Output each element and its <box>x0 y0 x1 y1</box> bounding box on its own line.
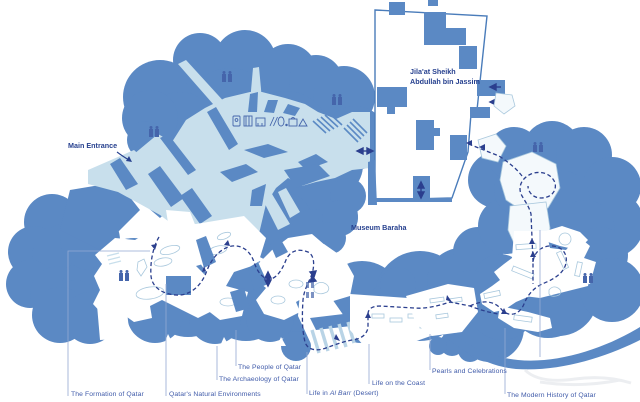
svg-text:Life in Al Barr (Desert): Life in Al Barr (Desert) <box>309 390 379 397</box>
svg-text:Abdullah bin Jassim: Abdullah bin Jassim <box>410 77 480 86</box>
svg-text:Museum Baraha: Museum Baraha <box>351 223 408 232</box>
svg-text:Life on the Coast: Life on the Coast <box>372 380 425 387</box>
svg-text:Qatar's Natural Environments: Qatar's Natural Environments <box>169 391 261 398</box>
svg-text:The Archaeology of Qatar: The Archaeology of Qatar <box>219 376 299 383</box>
svg-text:Pearls and Celebrations: Pearls and Celebrations <box>432 368 507 375</box>
svg-text:Main Entrance: Main Entrance <box>68 141 117 150</box>
svg-text:The People of Qatar: The People of Qatar <box>238 364 302 371</box>
svg-text:The Modern History of Qatar: The Modern History of Qatar <box>507 392 596 399</box>
svg-text:Jila'at Sheikh: Jila'at Sheikh <box>410 67 456 76</box>
svg-text:The Formation of Qatar: The Formation of Qatar <box>71 391 144 398</box>
